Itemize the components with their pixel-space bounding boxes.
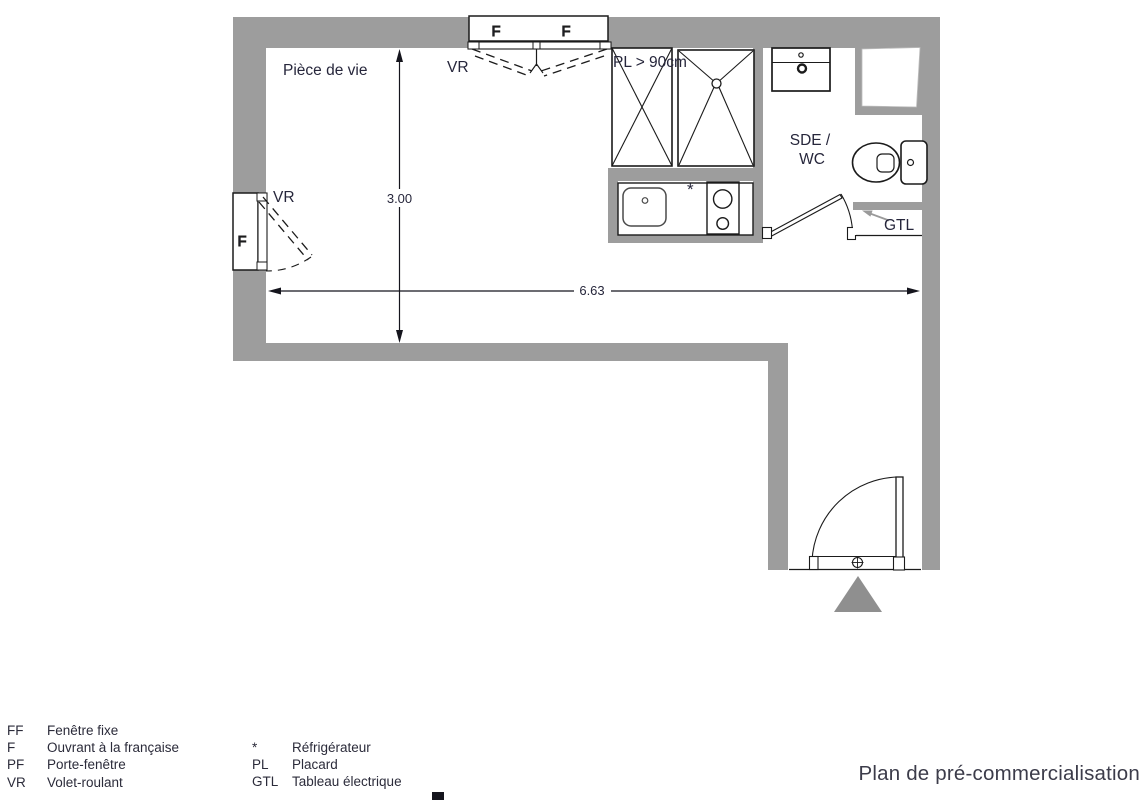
- window-top-swing-dashes: [472, 49, 607, 76]
- closet-label: PL > 90cm: [613, 54, 687, 71]
- dimension-width-label: 6.63: [579, 283, 604, 298]
- window-top-endcap-left: [468, 42, 479, 49]
- dimension-height: 3.00: [383, 49, 416, 343]
- window-left-endcap-bottom: [257, 262, 267, 270]
- window-left-swing-arc: [266, 257, 311, 271]
- legend-key: VR: [7, 774, 47, 791]
- bathroom-label-line1: SDE /: [790, 132, 831, 149]
- bathroom-door-jamb-left: [763, 228, 772, 239]
- entry-door-swing-arc: [812, 477, 900, 561]
- entry-door-jamb-left: [810, 557, 819, 570]
- floor-plan-page: F F VR F VR Pièce de vie: [0, 0, 1148, 800]
- window-top: F F: [468, 16, 611, 76]
- window-top-endcap-right: [600, 42, 611, 49]
- wall-top-mid: [608, 17, 855, 48]
- dimension-height-label: 3.00: [387, 191, 412, 206]
- room-label: Pièce de vie: [283, 62, 367, 79]
- bathroom-label-line2: WC: [799, 151, 825, 168]
- toilet-flush-button: [908, 160, 914, 166]
- window-left-box: [233, 193, 258, 270]
- entry-door: [789, 477, 921, 570]
- entry-door-jamb-right: [894, 557, 905, 570]
- kitchenette: [618, 182, 753, 235]
- kitchen-counter: [618, 183, 753, 235]
- legend-row: PLPlacard: [252, 756, 402, 773]
- gtl-label: GTL: [884, 217, 915, 234]
- legend-label: Fenêtre fixe: [47, 723, 118, 738]
- wall-corridor-left: [768, 361, 788, 570]
- legend-label: Placard: [292, 757, 338, 772]
- dimension-arrow-left: [268, 288, 281, 295]
- toilet: [853, 141, 928, 184]
- wall-left-upper: [233, 46, 266, 193]
- legend-label: Tableau électrique: [292, 774, 402, 789]
- legend-row: GTLTableau électrique: [252, 773, 402, 790]
- window-left-frame: [258, 193, 267, 270]
- shower-drain: [712, 79, 721, 88]
- entry-direction-triangle: [834, 576, 882, 612]
- toilet-seat-detail: [877, 154, 894, 172]
- legend-label: Volet-roulant: [47, 775, 123, 790]
- wall-kitchen-left: [608, 168, 618, 243]
- window-left-label-f: F: [238, 234, 247, 250]
- legend-row: FOuvrant à la française: [7, 739, 179, 756]
- washbasin: [772, 48, 830, 91]
- washbasin-outline: [772, 48, 830, 91]
- window-top-label-f-left: F: [492, 24, 501, 40]
- legend-key: PF: [7, 756, 47, 773]
- shower-outline: [678, 50, 754, 166]
- legend-key: GTL: [252, 773, 292, 790]
- wall-kitchen-bottom: [608, 235, 763, 243]
- dimension-arrow-down: [396, 330, 403, 343]
- window-top-box: [469, 16, 608, 41]
- legend-label: Ouvrant à la française: [47, 740, 179, 755]
- legend-row: PFPorte-fenêtre: [7, 756, 179, 773]
- wall-bottom: [233, 343, 788, 361]
- legend-row: *Réfrigérateur: [252, 739, 402, 756]
- window-top-vr-label: VR: [447, 59, 469, 76]
- technical-shaft: [862, 48, 920, 108]
- gtl-niche: GTL: [853, 210, 922, 236]
- page-title: Plan de pré-commercialisation: [858, 762, 1140, 786]
- wall-gtl-top: [853, 202, 922, 210]
- legend-label: Réfrigérateur: [292, 740, 371, 755]
- legend-key: FF: [7, 722, 47, 739]
- legend-column-2: *Réfrigérateur PLPlacard GTLTableau élec…: [252, 739, 402, 791]
- legend-label: Porte-fenêtre: [47, 757, 126, 772]
- window-top-mullion: [533, 42, 540, 49]
- legend-column-1: FFFenêtre fixe FOuvrant à la française P…: [7, 722, 179, 791]
- bathroom-door-leaf: [766, 195, 842, 239]
- legend-row: FFFenêtre fixe: [7, 722, 179, 739]
- entry-door-leaf: [896, 477, 903, 567]
- cropped-artifact: [432, 792, 444, 800]
- wall-top-left: [233, 17, 469, 48]
- dimension-width: 6.63: [268, 281, 920, 298]
- fridge-marker: *: [687, 180, 694, 199]
- legend-key: F: [7, 739, 47, 756]
- wall-under-closet: [608, 168, 763, 181]
- bathroom-door: [763, 194, 856, 240]
- legend-key: *: [252, 739, 292, 756]
- window-top-label-f-right: F: [562, 24, 571, 40]
- floor-plan-drawing: F F VR F VR Pièce de vie: [0, 0, 1148, 800]
- dimension-arrow-right: [907, 288, 920, 295]
- window-left-vr-label: VR: [273, 189, 295, 206]
- dimension-arrow-up: [396, 49, 403, 62]
- shower-tray: [678, 50, 754, 166]
- legend-key: PL: [252, 756, 292, 773]
- bathroom-door-swing-arc: [841, 194, 853, 230]
- legend-row: VRVolet-roulant: [7, 774, 179, 791]
